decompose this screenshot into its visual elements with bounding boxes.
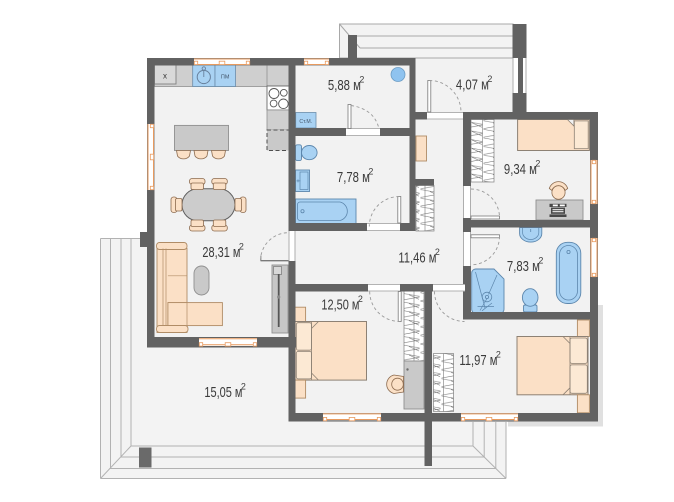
svg-text:2: 2: [435, 247, 440, 258]
svg-text:2: 2: [535, 159, 540, 170]
svg-text:11,97 м: 11,97 м: [459, 352, 497, 369]
svg-text:9,34 м: 9,34 м: [504, 161, 537, 178]
svg-text:x: x: [163, 72, 167, 81]
svg-text:7,83 м: 7,83 м: [507, 258, 540, 275]
svg-text:2: 2: [368, 167, 373, 178]
svg-text:28,31 м: 28,31 м: [202, 244, 240, 261]
svg-text:Ст.М.: Ст.М.: [299, 119, 312, 125]
svg-text:2: 2: [241, 382, 246, 393]
svg-text:2: 2: [487, 74, 492, 85]
svg-text:12,50 м: 12,50 м: [321, 297, 359, 314]
svg-text:2: 2: [496, 350, 501, 361]
svg-text:11,46 м: 11,46 м: [398, 250, 436, 267]
svg-text:2: 2: [538, 256, 543, 267]
svg-text:4,07 м: 4,07 м: [456, 77, 489, 94]
svg-text:ПМ: ПМ: [221, 75, 230, 81]
svg-text:5,88 м: 5,88 м: [328, 77, 361, 94]
svg-text:2: 2: [239, 242, 244, 253]
svg-text:15,05 м: 15,05 м: [204, 384, 242, 401]
svg-text:2: 2: [358, 294, 363, 305]
svg-text:2: 2: [359, 75, 364, 86]
svg-text:7,78 м: 7,78 м: [337, 169, 370, 186]
